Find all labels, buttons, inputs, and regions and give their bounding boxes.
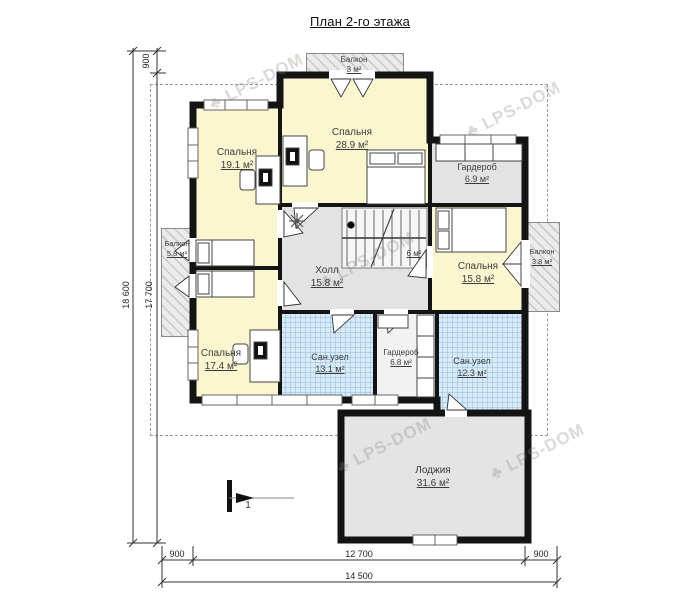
room-wardrobe-6-9 — [430, 140, 525, 205]
dim-bottom-left: 900 — [157, 549, 197, 559]
balcony-right — [525, 222, 560, 312]
room-bedroom-28-9 — [280, 75, 430, 205]
page-title: План 2-го этажа — [250, 14, 470, 29]
dim-left-total: 18 600 — [121, 265, 131, 325]
dim-bottom-right: 900 — [521, 549, 561, 559]
room-wardrobe-6-8 — [375, 312, 437, 400]
dim-bottom-total: 14 500 — [319, 571, 399, 581]
room-bedroom-17-4 — [193, 268, 280, 400]
room-bedroom-19-1 — [193, 105, 280, 268]
section-marker — [227, 480, 294, 512]
dim-bottom-main: 12 700 — [319, 549, 399, 559]
section-marker-number: 1 — [240, 500, 256, 511]
balcony-left — [161, 228, 196, 337]
room-loggia — [341, 413, 528, 540]
room-bedroom-15-8 — [430, 205, 525, 312]
floorplan-page: План 2-го этажа — [0, 0, 700, 600]
room-bath-12-3 — [437, 312, 525, 413]
dim-left-top: 900 — [141, 41, 151, 81]
room-hall — [280, 205, 430, 312]
room-bath-13-1 — [280, 312, 375, 400]
